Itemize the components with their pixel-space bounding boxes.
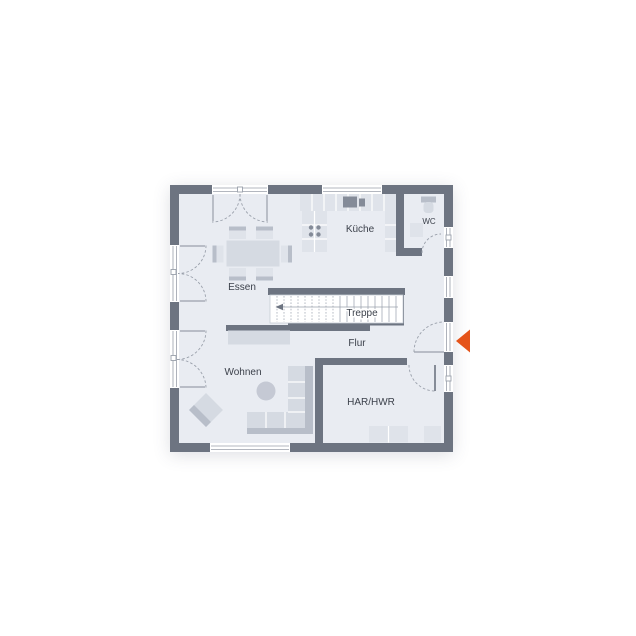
room-label-kueche: Küche [346,224,375,235]
wall-har-left [315,358,323,443]
kitchen-window [322,185,382,194]
entrance-arrow-icon [456,330,470,353]
wc-sink [410,223,423,237]
coffee-table [257,382,276,401]
room-label-flur: Flur [348,338,366,349]
page: Küche WC Essen Treppe Flur Wohnen HAR/HW… [0,0,636,636]
staircase [270,295,403,323]
wall-stairs-top [268,288,405,295]
room-label-essen: Essen [228,282,256,293]
dining-table [227,241,280,267]
wall-wc-left [396,194,404,256]
floor-plan: Küche WC Essen Treppe Flur Wohnen HAR/HW… [0,0,636,636]
wall-under-stairs [226,325,370,331]
room-label-har-hwr: HAR/HWR [347,397,395,408]
wall-har-top [315,358,407,365]
utility-appliances [369,426,441,443]
wc-window [444,227,453,248]
wall-right [444,185,453,452]
sideboard [228,331,290,345]
room-label-wc: WC [422,217,436,226]
wall-wc-bottom [396,248,422,256]
living-window [210,443,290,452]
room-label-treppe: Treppe [346,308,378,319]
room-label-wohnen: Wohnen [224,367,261,378]
wall-left [170,185,179,452]
hall-window [444,276,453,298]
utility-window [444,365,453,392]
